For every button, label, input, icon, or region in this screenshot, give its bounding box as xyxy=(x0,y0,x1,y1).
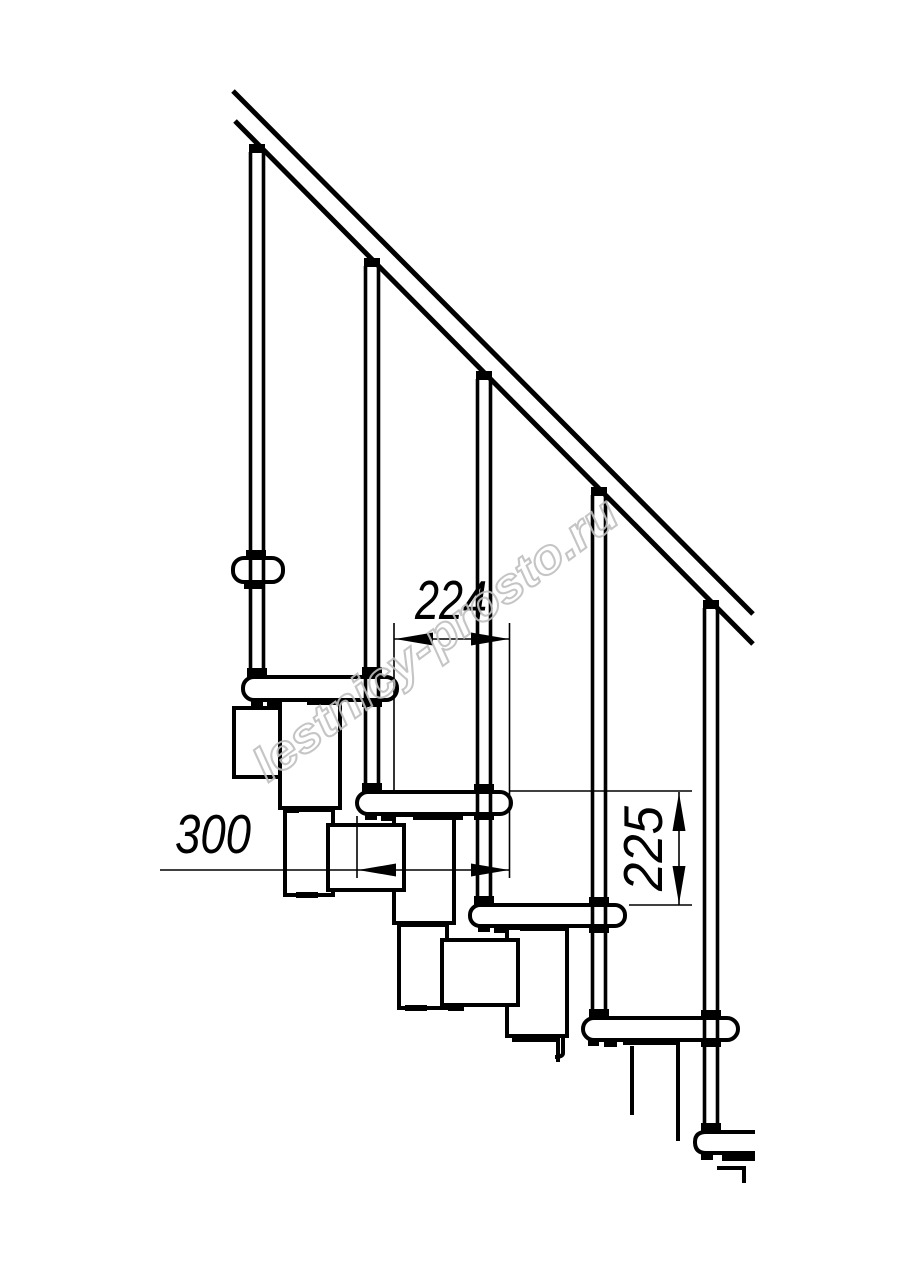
plate xyxy=(520,925,565,931)
arrowhead-down xyxy=(673,866,686,904)
module-chain xyxy=(280,700,744,1183)
baluster-1 xyxy=(244,144,267,677)
collar xyxy=(589,926,609,933)
rail-fastener xyxy=(249,144,265,153)
tab xyxy=(365,814,377,820)
tread-3 xyxy=(470,905,625,926)
baluster-foot xyxy=(247,668,267,677)
baluster-5 xyxy=(701,600,721,1132)
tread-4 xyxy=(583,1018,738,1040)
dimension-label-tread-depth: 300 xyxy=(175,803,251,865)
drawing-svg: 224 300 225 lestnicy-prosto.ru xyxy=(0,0,914,1280)
tab xyxy=(251,700,263,706)
handrail-top-edge xyxy=(233,91,753,614)
tab xyxy=(381,815,393,821)
rail-fastener xyxy=(476,371,492,380)
tab xyxy=(701,1154,713,1160)
baluster-foot xyxy=(701,1123,721,1132)
tab xyxy=(478,926,490,932)
collar xyxy=(474,784,494,792)
collar xyxy=(589,897,609,905)
rail-fastener xyxy=(364,258,380,267)
plate xyxy=(413,813,463,820)
plate xyxy=(623,1039,680,1045)
tab xyxy=(604,1041,617,1047)
collar xyxy=(701,1040,721,1047)
tab xyxy=(267,701,279,707)
tread-5-partial xyxy=(695,1132,755,1153)
joint-nub xyxy=(448,1004,464,1011)
watermark-text: lestnicy-prosto.ru xyxy=(243,488,628,792)
plate xyxy=(722,1151,755,1161)
joint-nub xyxy=(405,1005,427,1011)
staircase-technical-drawing: 224 300 225 lestnicy-prosto.ru xyxy=(0,0,914,1280)
tab xyxy=(588,1040,599,1046)
module-step-under-f xyxy=(717,1168,744,1183)
baluster-4 xyxy=(589,487,609,1018)
module-wide-1 xyxy=(328,825,404,890)
rail-fastener xyxy=(703,600,719,609)
baluster-foot xyxy=(589,1009,609,1018)
collar xyxy=(474,813,494,820)
module-small-1 xyxy=(285,810,333,895)
dimension-label-step-rise: 225 xyxy=(612,806,674,892)
module-small-2 xyxy=(399,925,447,1008)
baluster-foot xyxy=(362,783,382,792)
collar xyxy=(701,1010,721,1018)
collar xyxy=(244,582,264,589)
tab xyxy=(494,927,506,933)
tread-top-stub xyxy=(233,558,283,582)
handrail xyxy=(233,91,753,644)
module-partial-under-d xyxy=(512,1040,558,1062)
collar xyxy=(246,550,266,559)
module-wide-2 xyxy=(442,940,518,1005)
tread-2 xyxy=(357,792,511,814)
arrowhead-up xyxy=(673,793,686,831)
joint-nub xyxy=(296,892,318,898)
joint-nub xyxy=(283,807,299,813)
dimension-step-rise: 225 xyxy=(510,791,692,905)
joint-nub xyxy=(397,921,413,927)
baluster-foot xyxy=(474,896,494,905)
